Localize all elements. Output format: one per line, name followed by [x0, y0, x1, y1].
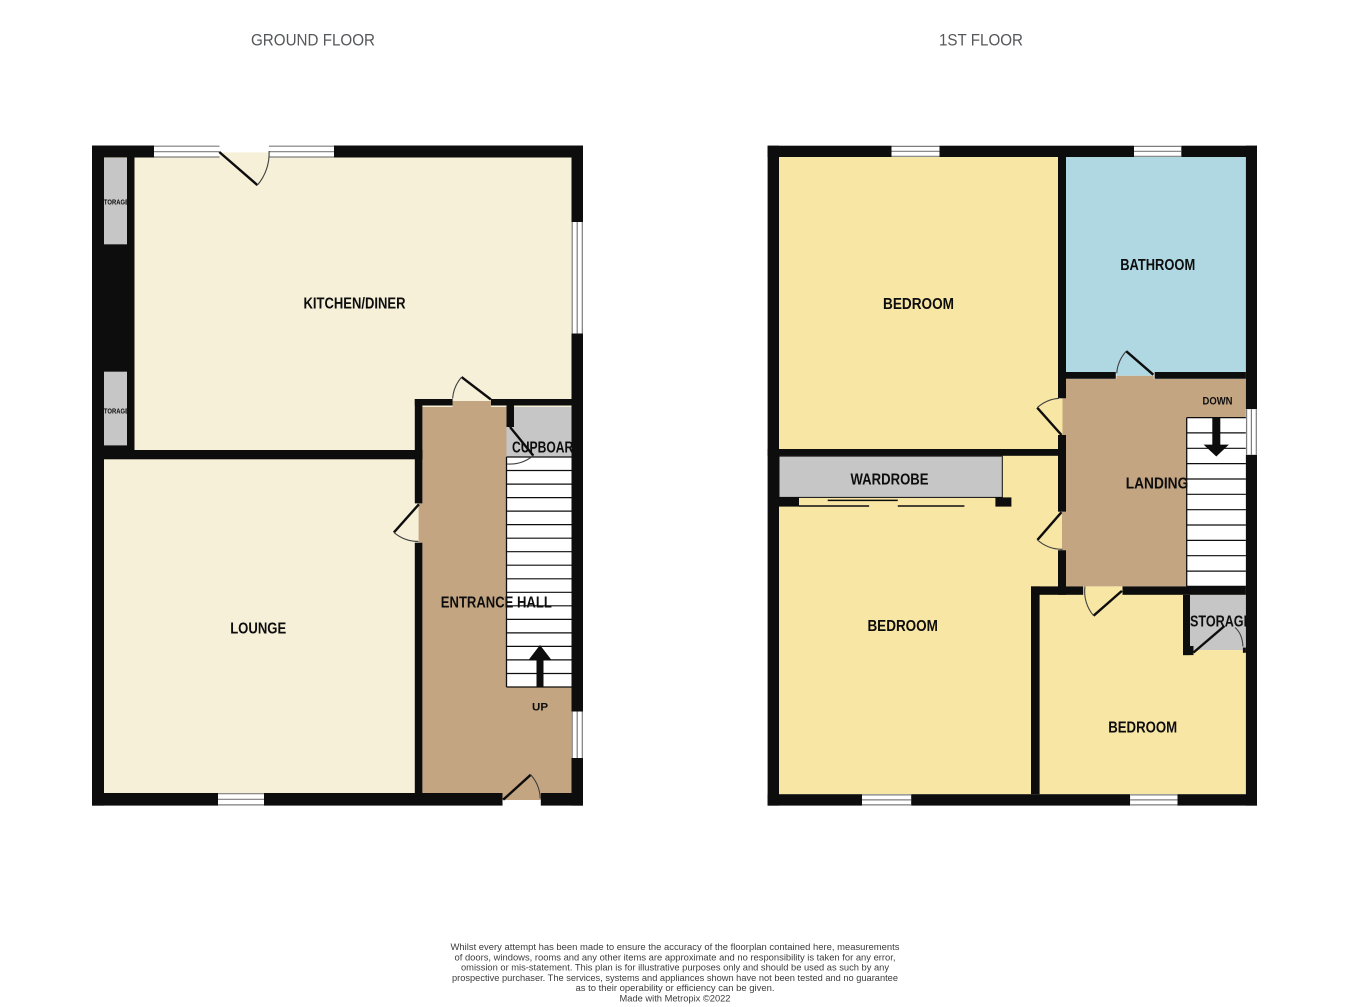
svg-text:UP: UP	[532, 702, 548, 714]
svg-text:GROUND FLOOR: GROUND FLOOR	[251, 32, 375, 50]
svg-text:prospective purchaser. The ser: prospective purchaser. The services, sys…	[452, 973, 898, 983]
svg-text:1ST FLOOR: 1ST FLOOR	[939, 32, 1023, 50]
svg-text:BEDROOM: BEDROOM	[867, 618, 938, 635]
svg-text:WARDROBE: WARDROBE	[851, 472, 929, 489]
svg-text:ENTRANCE HALL: ENTRANCE HALL	[441, 595, 552, 612]
svg-text:BEDROOM: BEDROOM	[883, 296, 954, 313]
svg-text:DOWN: DOWN	[1203, 396, 1233, 408]
svg-text:LOUNGE: LOUNGE	[230, 620, 286, 637]
svg-text:LANDING: LANDING	[1126, 476, 1189, 493]
svg-text:STORAGE: STORAGE	[100, 197, 129, 206]
svg-text:STORAGE: STORAGE	[100, 407, 129, 416]
svg-text:BEDROOM: BEDROOM	[1108, 720, 1177, 737]
svg-text:Made with Metropix ©2022: Made with Metropix ©2022	[620, 994, 731, 1004]
svg-text:BATHROOM: BATHROOM	[1120, 257, 1195, 274]
svg-text:KITCHEN/DINER: KITCHEN/DINER	[304, 295, 406, 312]
svg-text:of doors, windows, rooms and a: of doors, windows, rooms and any other i…	[455, 952, 896, 962]
svg-text:as to their operability or eff: as to their operability or efficiency ca…	[576, 983, 775, 993]
svg-text:Whilst every attempt has been: Whilst every attempt has been made to en…	[451, 942, 901, 952]
svg-text:omission or mis-statement. Thi: omission or mis-statement. This plan is …	[461, 963, 890, 973]
